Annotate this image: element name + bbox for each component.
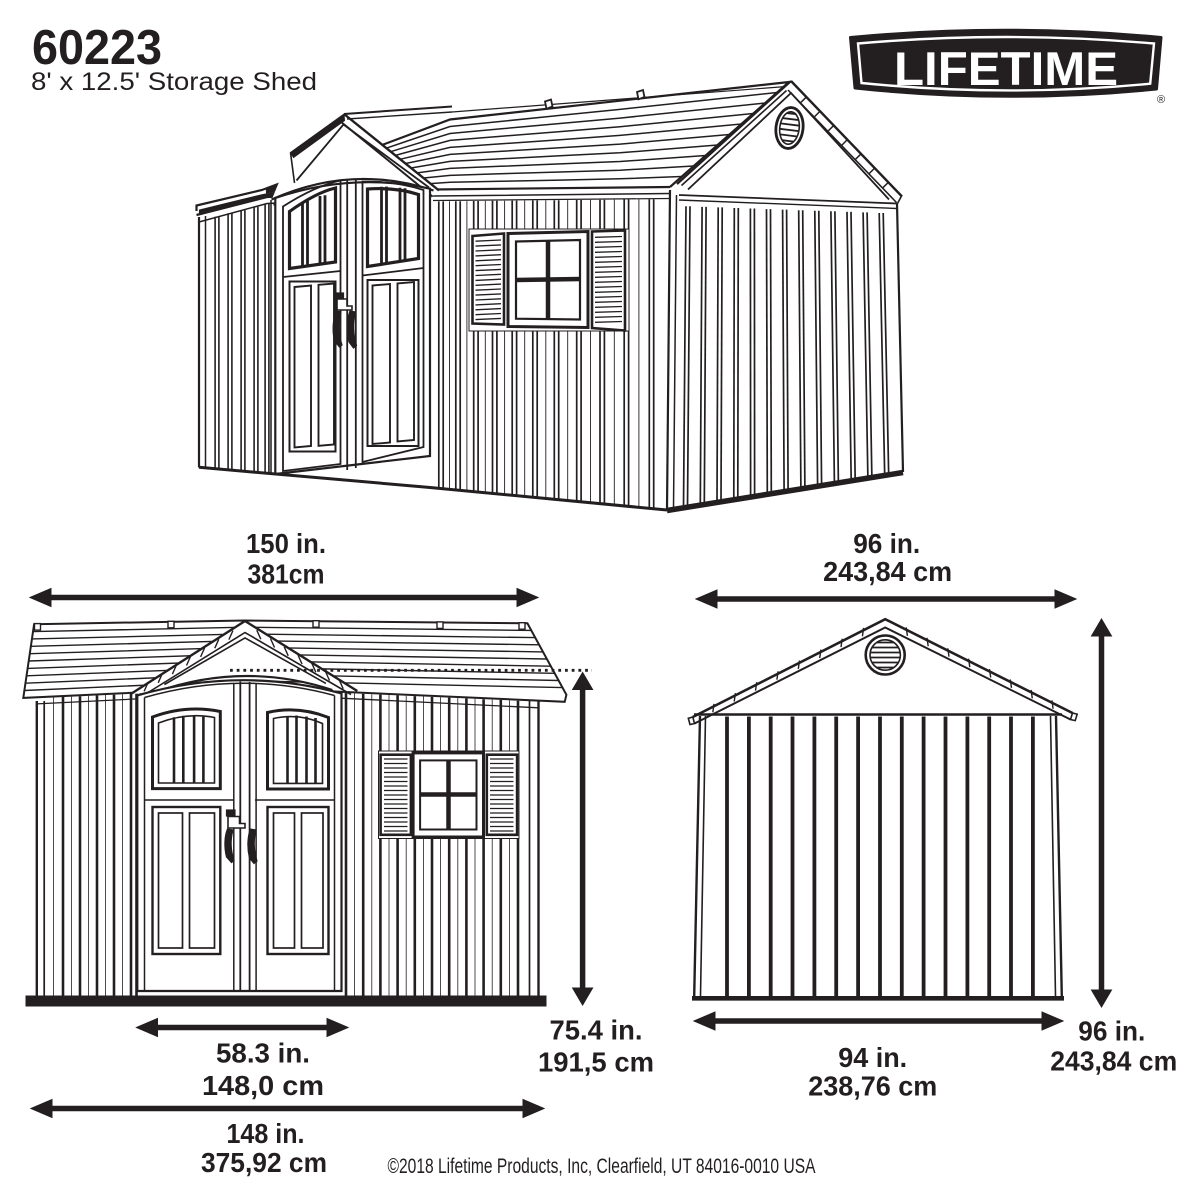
svg-text:96 in.: 96 in.: [1078, 1016, 1145, 1047]
svg-text:243,84 cm: 243,84 cm: [1050, 1046, 1177, 1077]
svg-text:96 in.: 96 in.: [853, 528, 920, 559]
svg-text:58.3 in.: 58.3 in.: [216, 1038, 310, 1069]
svg-text:375,92 cm: 375,92 cm: [201, 1147, 327, 1178]
svg-text:60223: 60223: [32, 21, 162, 75]
svg-text:LIFETIME: LIFETIME: [894, 42, 1118, 95]
svg-text:148,0 cm: 148,0 cm: [202, 1070, 324, 1101]
svg-text:150 in.: 150 in.: [246, 528, 326, 559]
svg-text:75.4 in.: 75.4 in.: [550, 1015, 643, 1046]
svg-text:94 in.: 94 in.: [838, 1042, 907, 1073]
svg-text:148 in.: 148 in.: [227, 1118, 305, 1149]
svg-text:243,84 cm: 243,84 cm: [823, 556, 952, 587]
svg-text:©2018 Lifetime Products, Inc,: ©2018 Lifetime Products, Inc, Clearfield…: [388, 1154, 816, 1178]
svg-text:381cm: 381cm: [248, 559, 325, 590]
svg-text:191,5 cm: 191,5 cm: [538, 1047, 654, 1078]
svg-text:238,76 cm: 238,76 cm: [808, 1071, 937, 1102]
svg-text:8' x 12.5' Storage Shed: 8' x 12.5' Storage Shed: [31, 68, 317, 96]
svg-text:®: ®: [1157, 94, 1165, 106]
